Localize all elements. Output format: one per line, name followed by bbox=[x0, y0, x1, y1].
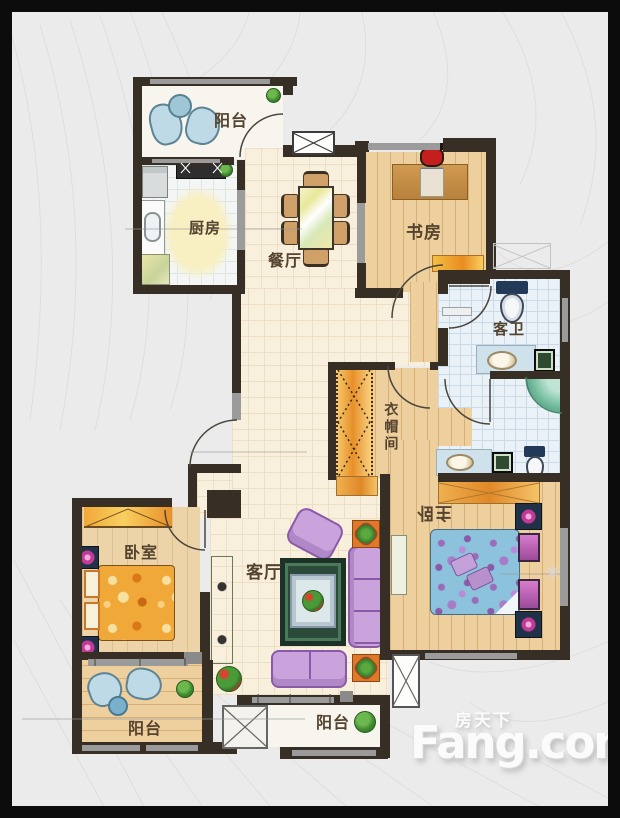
room-label-guest-bath: 客卫 bbox=[493, 321, 525, 338]
room-label-bedroom: 卧室 bbox=[124, 544, 158, 562]
room-label-master-bedroom: 主卧 bbox=[416, 503, 452, 522]
plan-linework bbox=[12, 12, 608, 806]
room-label-kitchen: 厨房 bbox=[189, 220, 221, 237]
room-label-balcony-left: 阳台 bbox=[128, 720, 162, 738]
room-label-closet: 衣帽间 bbox=[382, 402, 397, 468]
room-label-living: 客厅 bbox=[246, 564, 282, 583]
room-label-dining: 餐厅 bbox=[268, 252, 302, 270]
fang-watermark-en: Fang.com bbox=[410, 716, 608, 769]
floorplan-canvas: 阳台 厨房 餐厅 书房 客卫 衣帽间 主卧 卧室 客厅 阳台 阳台 房天下 Fa… bbox=[12, 12, 608, 806]
room-label-balcony-middle: 阳台 bbox=[316, 714, 350, 732]
room-label-balcony-top: 阳台 bbox=[214, 112, 248, 130]
fang-watermark: 房天下 Fang.com bbox=[410, 704, 608, 784]
room-label-study: 书房 bbox=[406, 224, 442, 243]
floorplan-image: 阳台 厨房 餐厅 书房 客卫 衣帽间 主卧 卧室 客厅 阳台 阳台 房天下 Fa… bbox=[0, 0, 620, 818]
